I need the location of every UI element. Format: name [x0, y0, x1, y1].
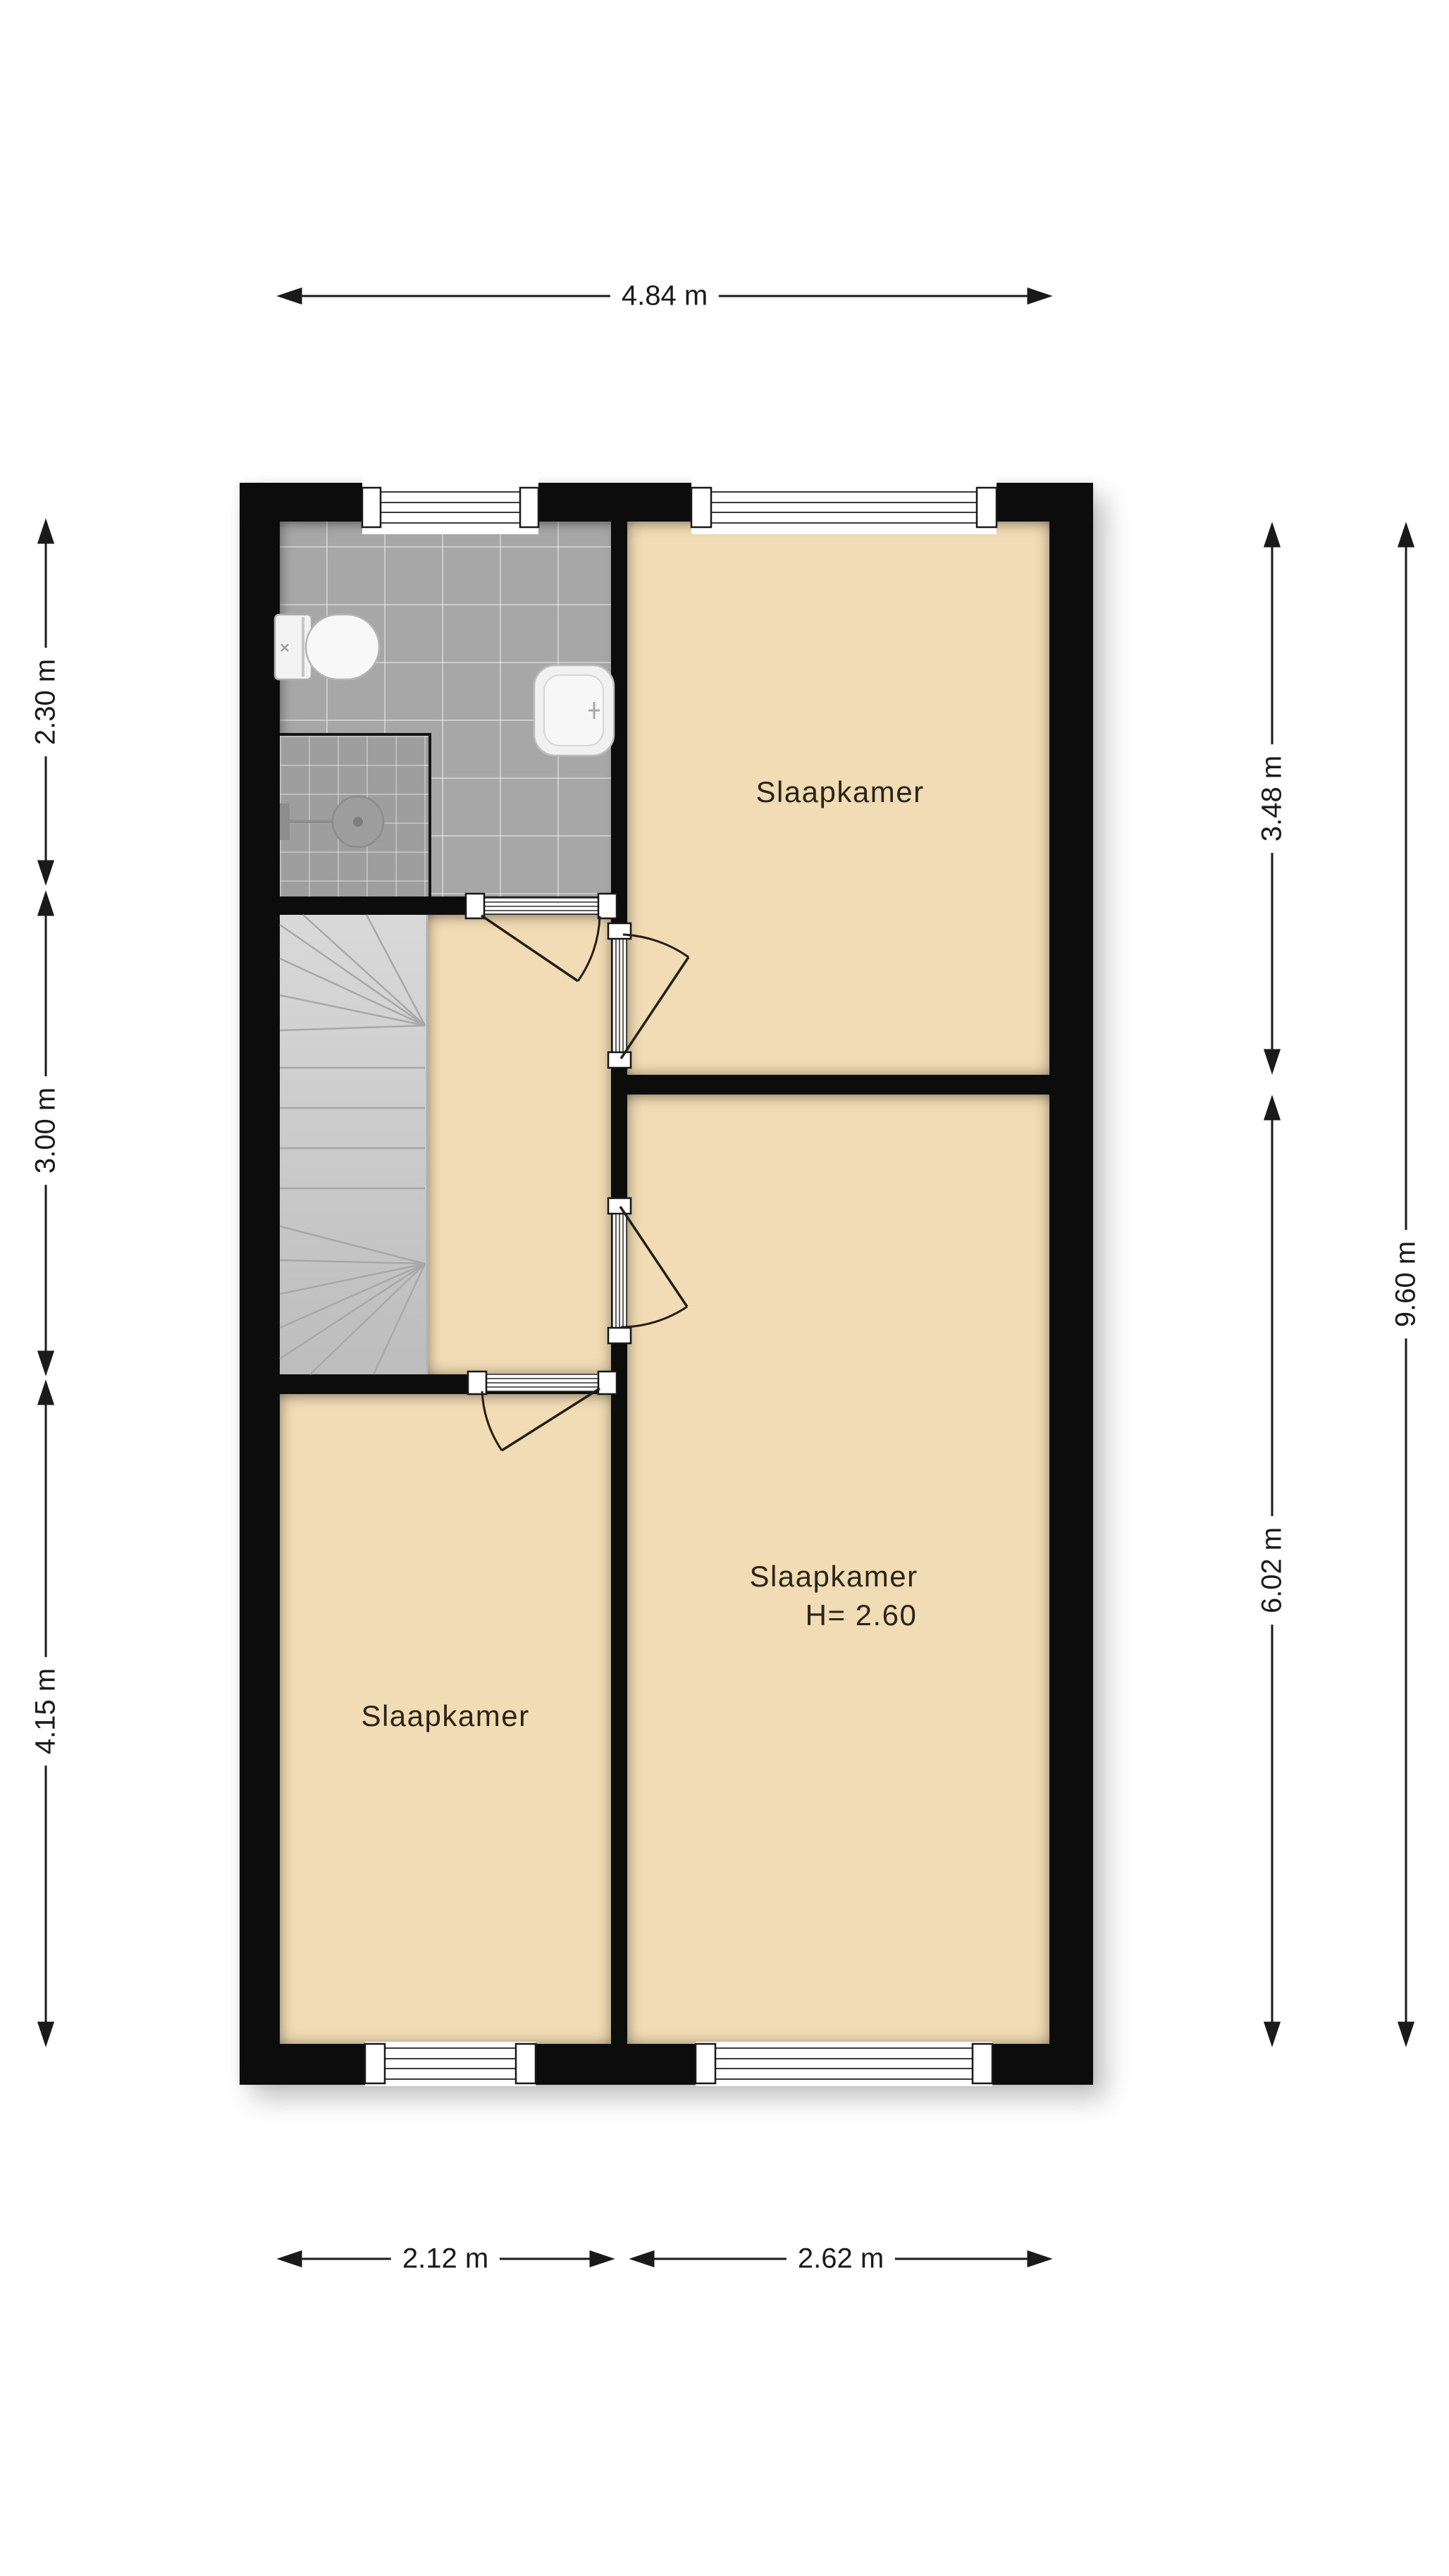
dimension-label-left-2: 3.00 m	[27, 1076, 65, 1185]
dimension-label-left-3: 4.15 m	[27, 1657, 65, 1765]
dimension-label-bottom-right: 2.62 m	[787, 2241, 895, 2278]
plan-graphics	[0, 0, 1449, 2576]
toilet-icon	[275, 615, 379, 679]
floorplan: Slaapkamer Slaapkamer H= 2.60 Slaapkamer…	[0, 0, 1449, 2576]
window-symbol	[696, 2042, 992, 2086]
dimension-label-right-inner-1: 3.48 m	[1254, 744, 1291, 853]
dimension-label-bottom-left: 2.12 m	[391, 2241, 500, 2278]
door-swing-symbol	[468, 1372, 617, 1450]
shower-head-icon	[280, 796, 383, 847]
room-label-bedroom-bottom-right: Slaapkamer	[749, 1560, 918, 1594]
door-swing-symbol	[466, 894, 617, 981]
stair-treads	[280, 915, 427, 1374]
room-label-bedroom-top-right: Slaapkamer	[756, 775, 924, 809]
room-height-note: H= 2.60	[806, 1598, 918, 1632]
door-swing-symbol	[608, 923, 689, 1068]
sink-icon	[534, 665, 614, 756]
door-swing-symbol	[608, 1198, 687, 1343]
dimension-label-left-1: 2.30 m	[27, 648, 65, 756]
dimension-arrows	[39, 289, 1413, 2266]
window-symbol	[365, 2042, 536, 2086]
room-label-bedroom-bottom-left: Slaapkamer	[361, 1699, 529, 1733]
window-symbol	[691, 476, 997, 534]
dimension-label-right-inner-2: 6.02 m	[1254, 1516, 1291, 1625]
window-symbol	[362, 476, 538, 534]
dimension-label-top: 4.84 m	[610, 278, 719, 315]
dimension-label-right-outer: 9.60 m	[1388, 1230, 1425, 1338]
